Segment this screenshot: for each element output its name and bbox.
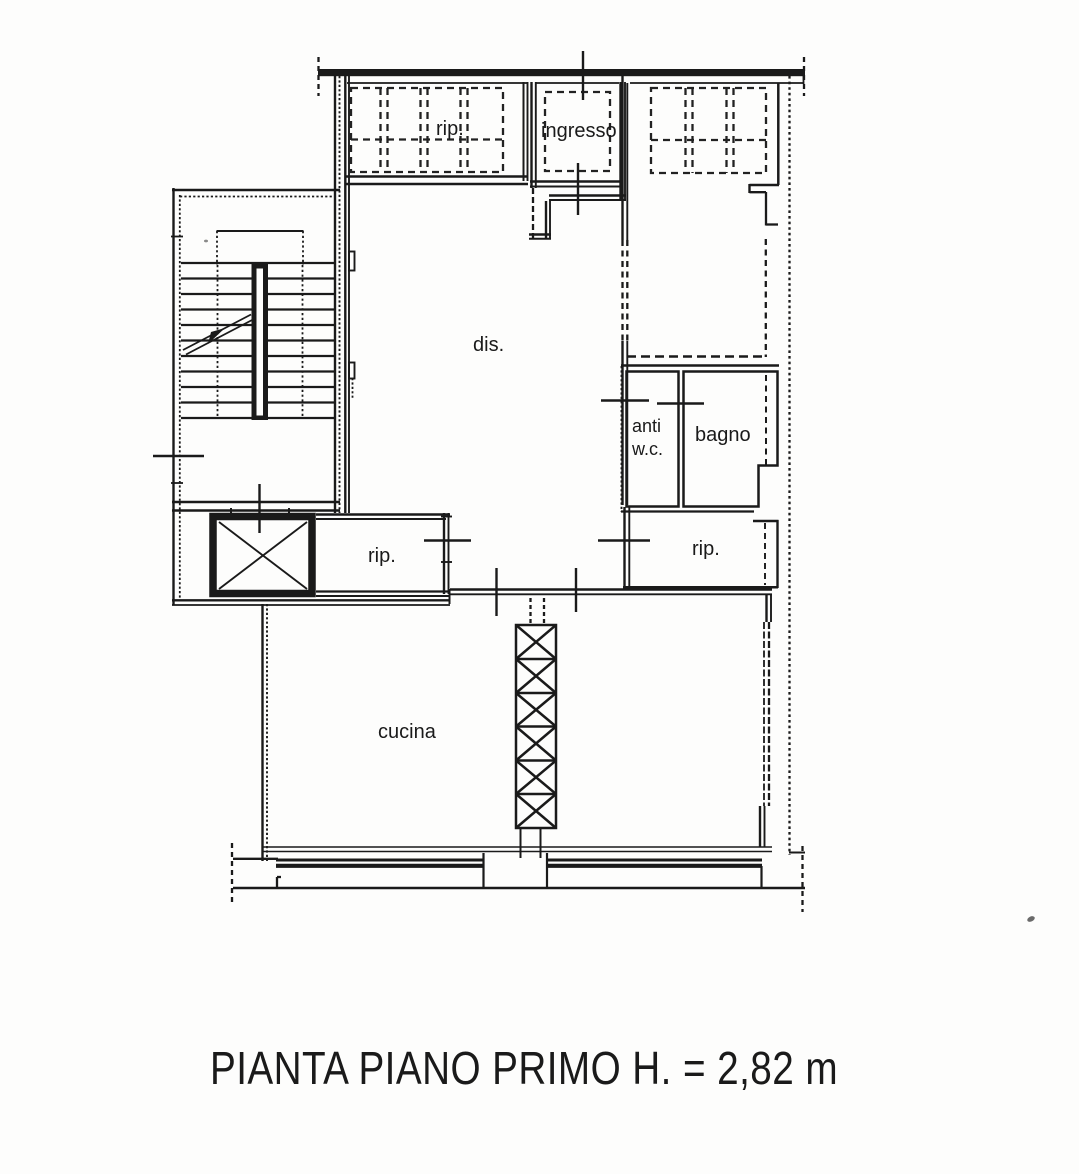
- svg-text:ingresso: ingresso: [541, 120, 617, 142]
- svg-text:rip.: rip.: [436, 118, 464, 140]
- svg-text:w.c.: w.c.: [631, 439, 663, 459]
- svg-text:bagno: bagno: [695, 424, 751, 446]
- svg-text:PIANTA PIANO PRIMO H. = 2,82 m: PIANTA PIANO PRIMO H. = 2,82 m: [210, 1042, 838, 1094]
- svg-text:dis.: dis.: [473, 334, 504, 356]
- svg-text:anti: anti: [632, 416, 661, 436]
- svg-text:rip.: rip.: [692, 538, 720, 560]
- svg-text:cucina: cucina: [378, 721, 437, 743]
- svg-text:rip.: rip.: [368, 545, 396, 567]
